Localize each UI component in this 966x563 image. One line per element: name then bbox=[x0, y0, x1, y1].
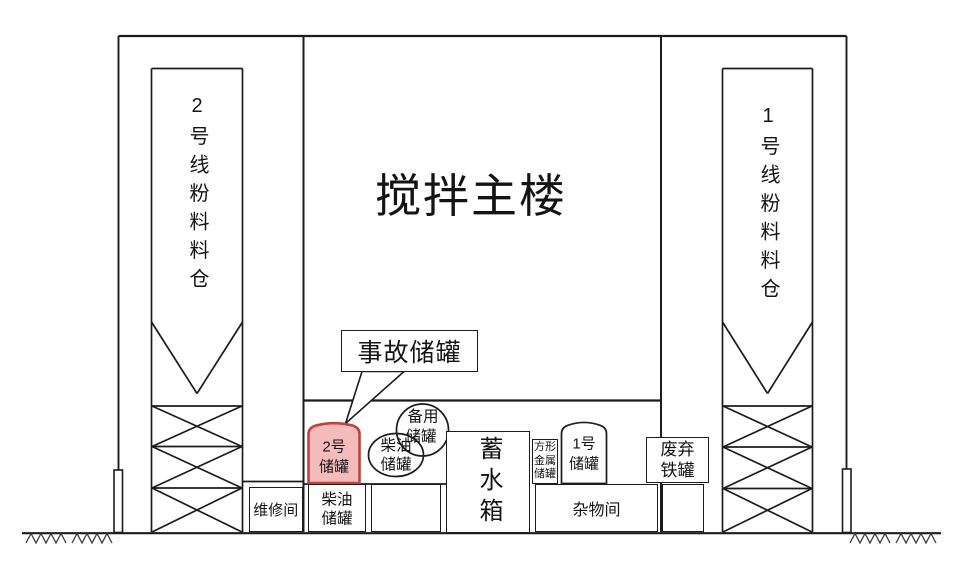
sundry-room-label: 杂物间 bbox=[572, 496, 620, 520]
accident-tank-line2: 储罐 bbox=[319, 460, 349, 475]
right-silo-label: 1号线粉料料仓 bbox=[758, 105, 778, 307]
right-footing-post bbox=[843, 469, 852, 533]
unlabeled-bay-left bbox=[371, 484, 441, 532]
right-silo-cross-bracing bbox=[723, 406, 812, 532]
unlabeled-bay-right bbox=[662, 484, 705, 532]
square-metal-tank-line3: 储罐 bbox=[534, 468, 556, 482]
left-silo-cross-bracing bbox=[152, 406, 242, 532]
callout-box: 事故储罐 bbox=[341, 330, 478, 372]
water-tank-label: 蓄水箱 bbox=[476, 436, 500, 529]
diesel-tank-upper-line1: 柴油 bbox=[380, 438, 411, 454]
ground-hatch-right bbox=[850, 534, 936, 544]
backup-tank-line1: 备用 bbox=[407, 409, 438, 425]
water-tank-box: 蓄水箱 bbox=[446, 431, 530, 533]
left-silo-frame-chords bbox=[152, 406, 242, 488]
scrap-iron-tank-box: 废弃 铁罐 bbox=[646, 437, 709, 483]
callout-label: 事故储罐 bbox=[357, 333, 461, 369]
tank-no1-shape bbox=[562, 422, 607, 483]
tank-no1-line2: 储罐 bbox=[569, 457, 599, 472]
ground-hatch-left bbox=[26, 534, 112, 544]
diesel-tank-lower-line1: 柴油 bbox=[321, 492, 352, 508]
plant-elevation-diagram: 事故储罐 蓄水箱 方形 金属 储罐 废弃 铁罐 杂物间 维修间 搅拌主楼 2号线… bbox=[0, 0, 966, 563]
right-silo-hopper bbox=[723, 322, 813, 394]
tank-no1-line1: 1号 bbox=[572, 437, 595, 452]
accident-tank-line1: 2号 bbox=[322, 440, 345, 455]
diesel-tank-lower-line2: 储罐 bbox=[321, 511, 352, 527]
left-silo-hopper bbox=[152, 322, 243, 394]
maintenance-room-box: 维修间 bbox=[249, 487, 304, 532]
sundry-room-box: 杂物间 bbox=[535, 484, 658, 532]
scrap-iron-tank-line2: 铁罐 bbox=[661, 460, 695, 482]
left-silo-label: 2号线粉料料仓 bbox=[187, 95, 207, 297]
square-metal-tank-line2: 金属 bbox=[534, 455, 556, 469]
diesel-tank-upper-line2: 储罐 bbox=[380, 457, 411, 473]
square-metal-tank-line1: 方形 bbox=[534, 441, 556, 455]
right-silo-frame-chords bbox=[723, 406, 812, 489]
ground bbox=[22, 533, 941, 543]
square-metal-tank-box: 方形 金属 储罐 bbox=[532, 439, 558, 484]
scrap-iron-tank-line1: 废弃 bbox=[661, 439, 695, 461]
left-footing-post bbox=[114, 470, 123, 533]
main-building-label: 搅拌主楼 bbox=[375, 173, 567, 219]
maintenance-room-label: 维修间 bbox=[253, 499, 298, 520]
callout-pointer bbox=[346, 372, 405, 424]
